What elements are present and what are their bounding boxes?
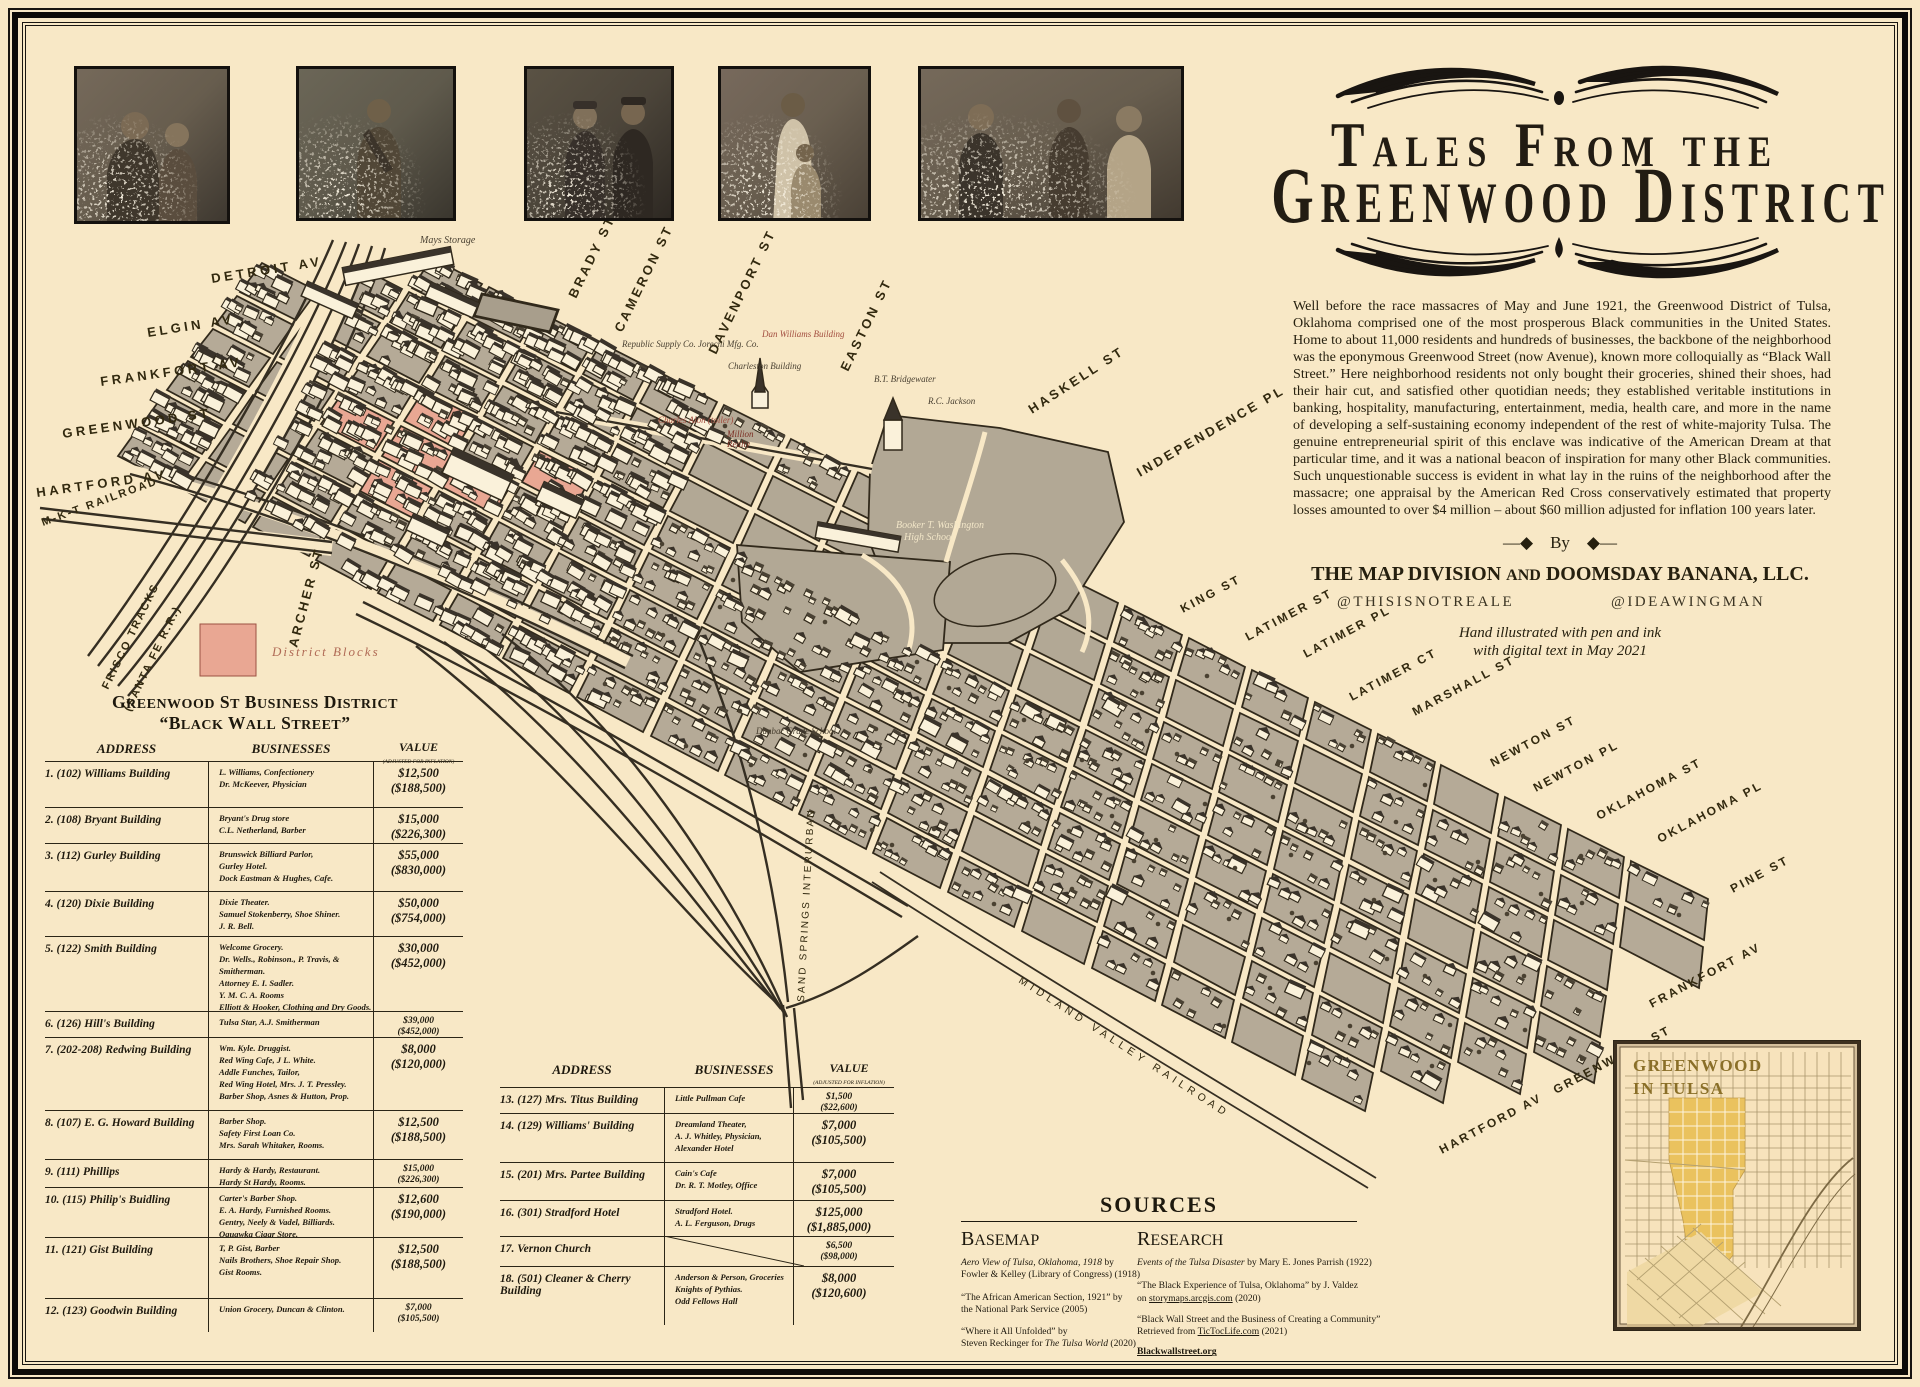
svg-text:IN TULSA: IN TULSA [1633,1079,1725,1098]
svg-text:GREENWOOD: GREENWOOD [1633,1056,1763,1075]
